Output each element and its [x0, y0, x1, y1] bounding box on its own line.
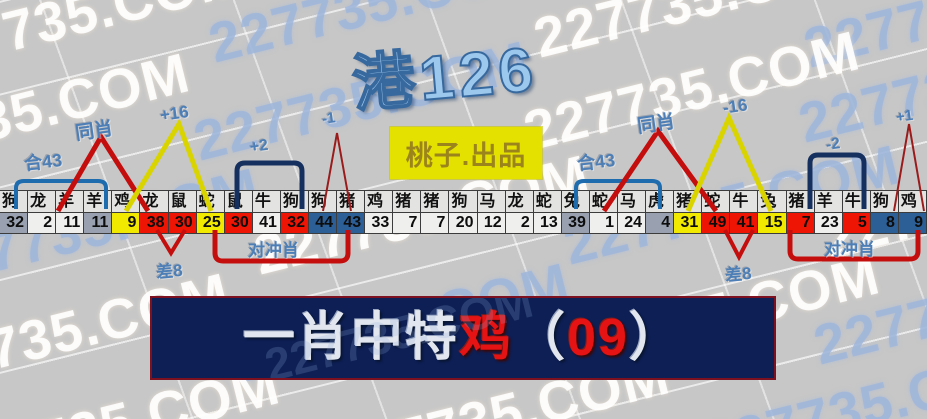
zodiac-animal-cell: 兔: [562, 191, 590, 213]
zodiac-animal-cell: 狗: [0, 191, 28, 213]
zodiac-number-cell: 7: [787, 213, 815, 234]
zodiac-animal-cell: 鼠: [225, 191, 253, 213]
banner-paren-close: ）: [629, 312, 683, 364]
zodiac-number-cell: 33: [365, 213, 393, 234]
zodiac-animal-cell: 兔: [758, 191, 786, 213]
zodiac-number-cell: 43: [337, 213, 365, 234]
annotation-delta-top-right: -16: [722, 95, 749, 118]
zodiac-animal-cell: 蛇: [702, 191, 730, 213]
result-banner: 227735.COM 一肖中特 鸡 （ 09 ）: [150, 296, 776, 380]
zodiac-number-cell: 15: [758, 213, 786, 234]
page-title: 港126: [348, 18, 541, 124]
zodiac-number-cell: 7: [393, 213, 421, 234]
annotation-opposite-left: 对冲肖: [248, 236, 299, 261]
publisher-label: 桃子.出品: [406, 134, 527, 173]
zodiac-number-cell: 39: [562, 213, 590, 234]
annotation-thin-delta-left: -1: [321, 109, 337, 128]
annotation-diff-left: 差8: [155, 256, 184, 283]
zodiac-animal-cell: 龙: [140, 191, 168, 213]
zodiac-number-cell: 5: [843, 213, 871, 234]
zodiac-number-cell: 23: [815, 213, 843, 234]
zodiac-number-cell: 20: [449, 213, 477, 234]
zodiac-number-cell: 41: [730, 213, 758, 234]
zodiac-animal-cell: 猪: [393, 191, 421, 213]
zodiac-animal-cell: 羊: [84, 191, 112, 213]
zodiac-animal-cell: 猪: [674, 191, 702, 213]
zodiac-number-cell: 49: [702, 213, 730, 234]
zodiac-animal-cell: 羊: [815, 191, 843, 213]
zodiac-animal-cell: 狗: [449, 191, 477, 213]
animal-row: 狗龙羊羊鸡龙鼠蛇鼠牛狗狗猪鸡猪猪狗马龙蛇兔蛇马虎猪蛇牛兔猪羊牛狗鸡: [0, 191, 927, 213]
zodiac-number-cell: 32: [0, 213, 28, 234]
zodiac-animal-cell: 马: [478, 191, 506, 213]
zodiac-number-cell: 31: [674, 213, 702, 234]
zodiac-number-cell: 7: [421, 213, 449, 234]
zodiac-animal-cell: 蛇: [590, 191, 618, 213]
annotation-sum-right: 合43: [576, 146, 617, 176]
zodiac-number-cell: 30: [225, 213, 253, 234]
banner-number: 09: [567, 312, 629, 364]
zodiac-number-cell: 32: [281, 213, 309, 234]
zodiac-animal-cell: 狗: [309, 191, 337, 213]
zodiac-animal-cell: 鸡: [899, 191, 927, 213]
zodiac-animal-cell: 猪: [421, 191, 449, 213]
annotation-bracket-delta-right: -2: [825, 135, 842, 155]
annotation-sum-left: 合43: [23, 146, 64, 176]
annotation-opposite-right: 对冲肖: [824, 235, 875, 260]
zodiac-number-cell: 9: [112, 213, 140, 234]
annotation-same-zodiac-right: 同肖: [635, 106, 676, 138]
zodiac-number-cell: 25: [197, 213, 225, 234]
zodiac-number-cell: 9: [899, 213, 927, 234]
zodiac-animal-cell: 鸡: [365, 191, 393, 213]
zodiac-animal-cell: 牛: [253, 191, 281, 213]
zodiac-animal-cell: 鸡: [112, 191, 140, 213]
zodiac-animal-cell: 猪: [337, 191, 365, 213]
zodiac-number-cell: 24: [618, 213, 646, 234]
zodiac-number-cell: 1: [590, 213, 618, 234]
zodiac-number-cell: 12: [478, 213, 506, 234]
zodiac-animal-cell: 牛: [843, 191, 871, 213]
screenshot-root: 227735.COM 227735.COM 227735.COM 227735.…: [0, 0, 927, 419]
annotation-bracket-delta-left: +2: [249, 137, 270, 157]
zodiac-animal-cell: 马: [618, 191, 646, 213]
zodiac-number-cell: 44: [309, 213, 337, 234]
zodiac-table: 狗龙羊羊鸡龙鼠蛇鼠牛狗狗猪鸡猪猪狗马龙蛇兔蛇马虎猪蛇牛兔猪羊牛狗鸡 322111…: [0, 190, 927, 234]
zodiac-animal-cell: 羊: [56, 191, 84, 213]
zodiac-number-cell: 2: [28, 213, 56, 234]
zodiac-number-cell: 4: [646, 213, 674, 234]
zodiac-number-cell: 11: [56, 213, 84, 234]
zodiac-number-cell: 8: [871, 213, 899, 234]
number-row: 3221111938302530413244433377201221339124…: [0, 213, 927, 234]
publisher-box: 桃子.出品: [390, 127, 542, 179]
zodiac-animal-cell: 龙: [28, 191, 56, 213]
annotation-delta-top-left: +16: [159, 102, 190, 126]
zodiac-animal-cell: 狗: [281, 191, 309, 213]
annotation-same-zodiac-left: 同肖: [73, 113, 114, 145]
zodiac-number-cell: 13: [534, 213, 562, 234]
zodiac-animal-cell: 龙: [506, 191, 534, 213]
zodiac-animal-cell: 鼠: [169, 191, 197, 213]
zodiac-animal-cell: 蛇: [534, 191, 562, 213]
zodiac-animal-cell: 蛇: [197, 191, 225, 213]
zodiac-number-cell: 2: [506, 213, 534, 234]
zodiac-number-cell: 41: [253, 213, 281, 234]
zodiac-animal-cell: 虎: [646, 191, 674, 213]
zodiac-number-cell: 11: [84, 213, 112, 234]
zodiac-number-cell: 38: [140, 213, 168, 234]
zodiac-animal-cell: 牛: [730, 191, 758, 213]
annotation-thin-delta-right: +1: [895, 107, 914, 126]
annotation-diff-right: 差8: [724, 259, 753, 286]
zodiac-animal-cell: 猪: [787, 191, 815, 213]
zodiac-number-cell: 30: [169, 213, 197, 234]
zodiac-animal-cell: 狗: [871, 191, 899, 213]
